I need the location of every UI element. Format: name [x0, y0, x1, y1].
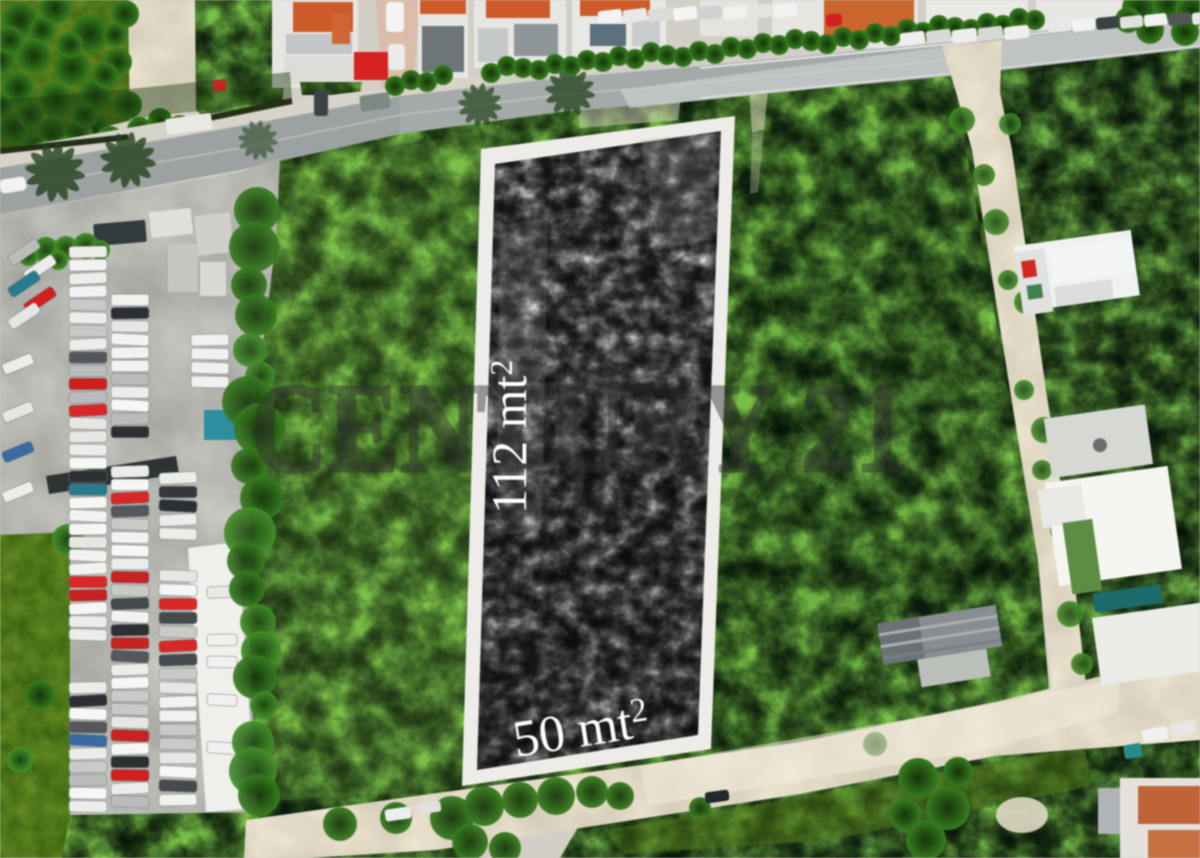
svg-text:®: ® — [944, 452, 959, 474]
svg-text:CENTURY 21: CENTURY 21 — [250, 357, 908, 499]
svg-text:112 mt2: 112 mt2 — [481, 360, 537, 514]
